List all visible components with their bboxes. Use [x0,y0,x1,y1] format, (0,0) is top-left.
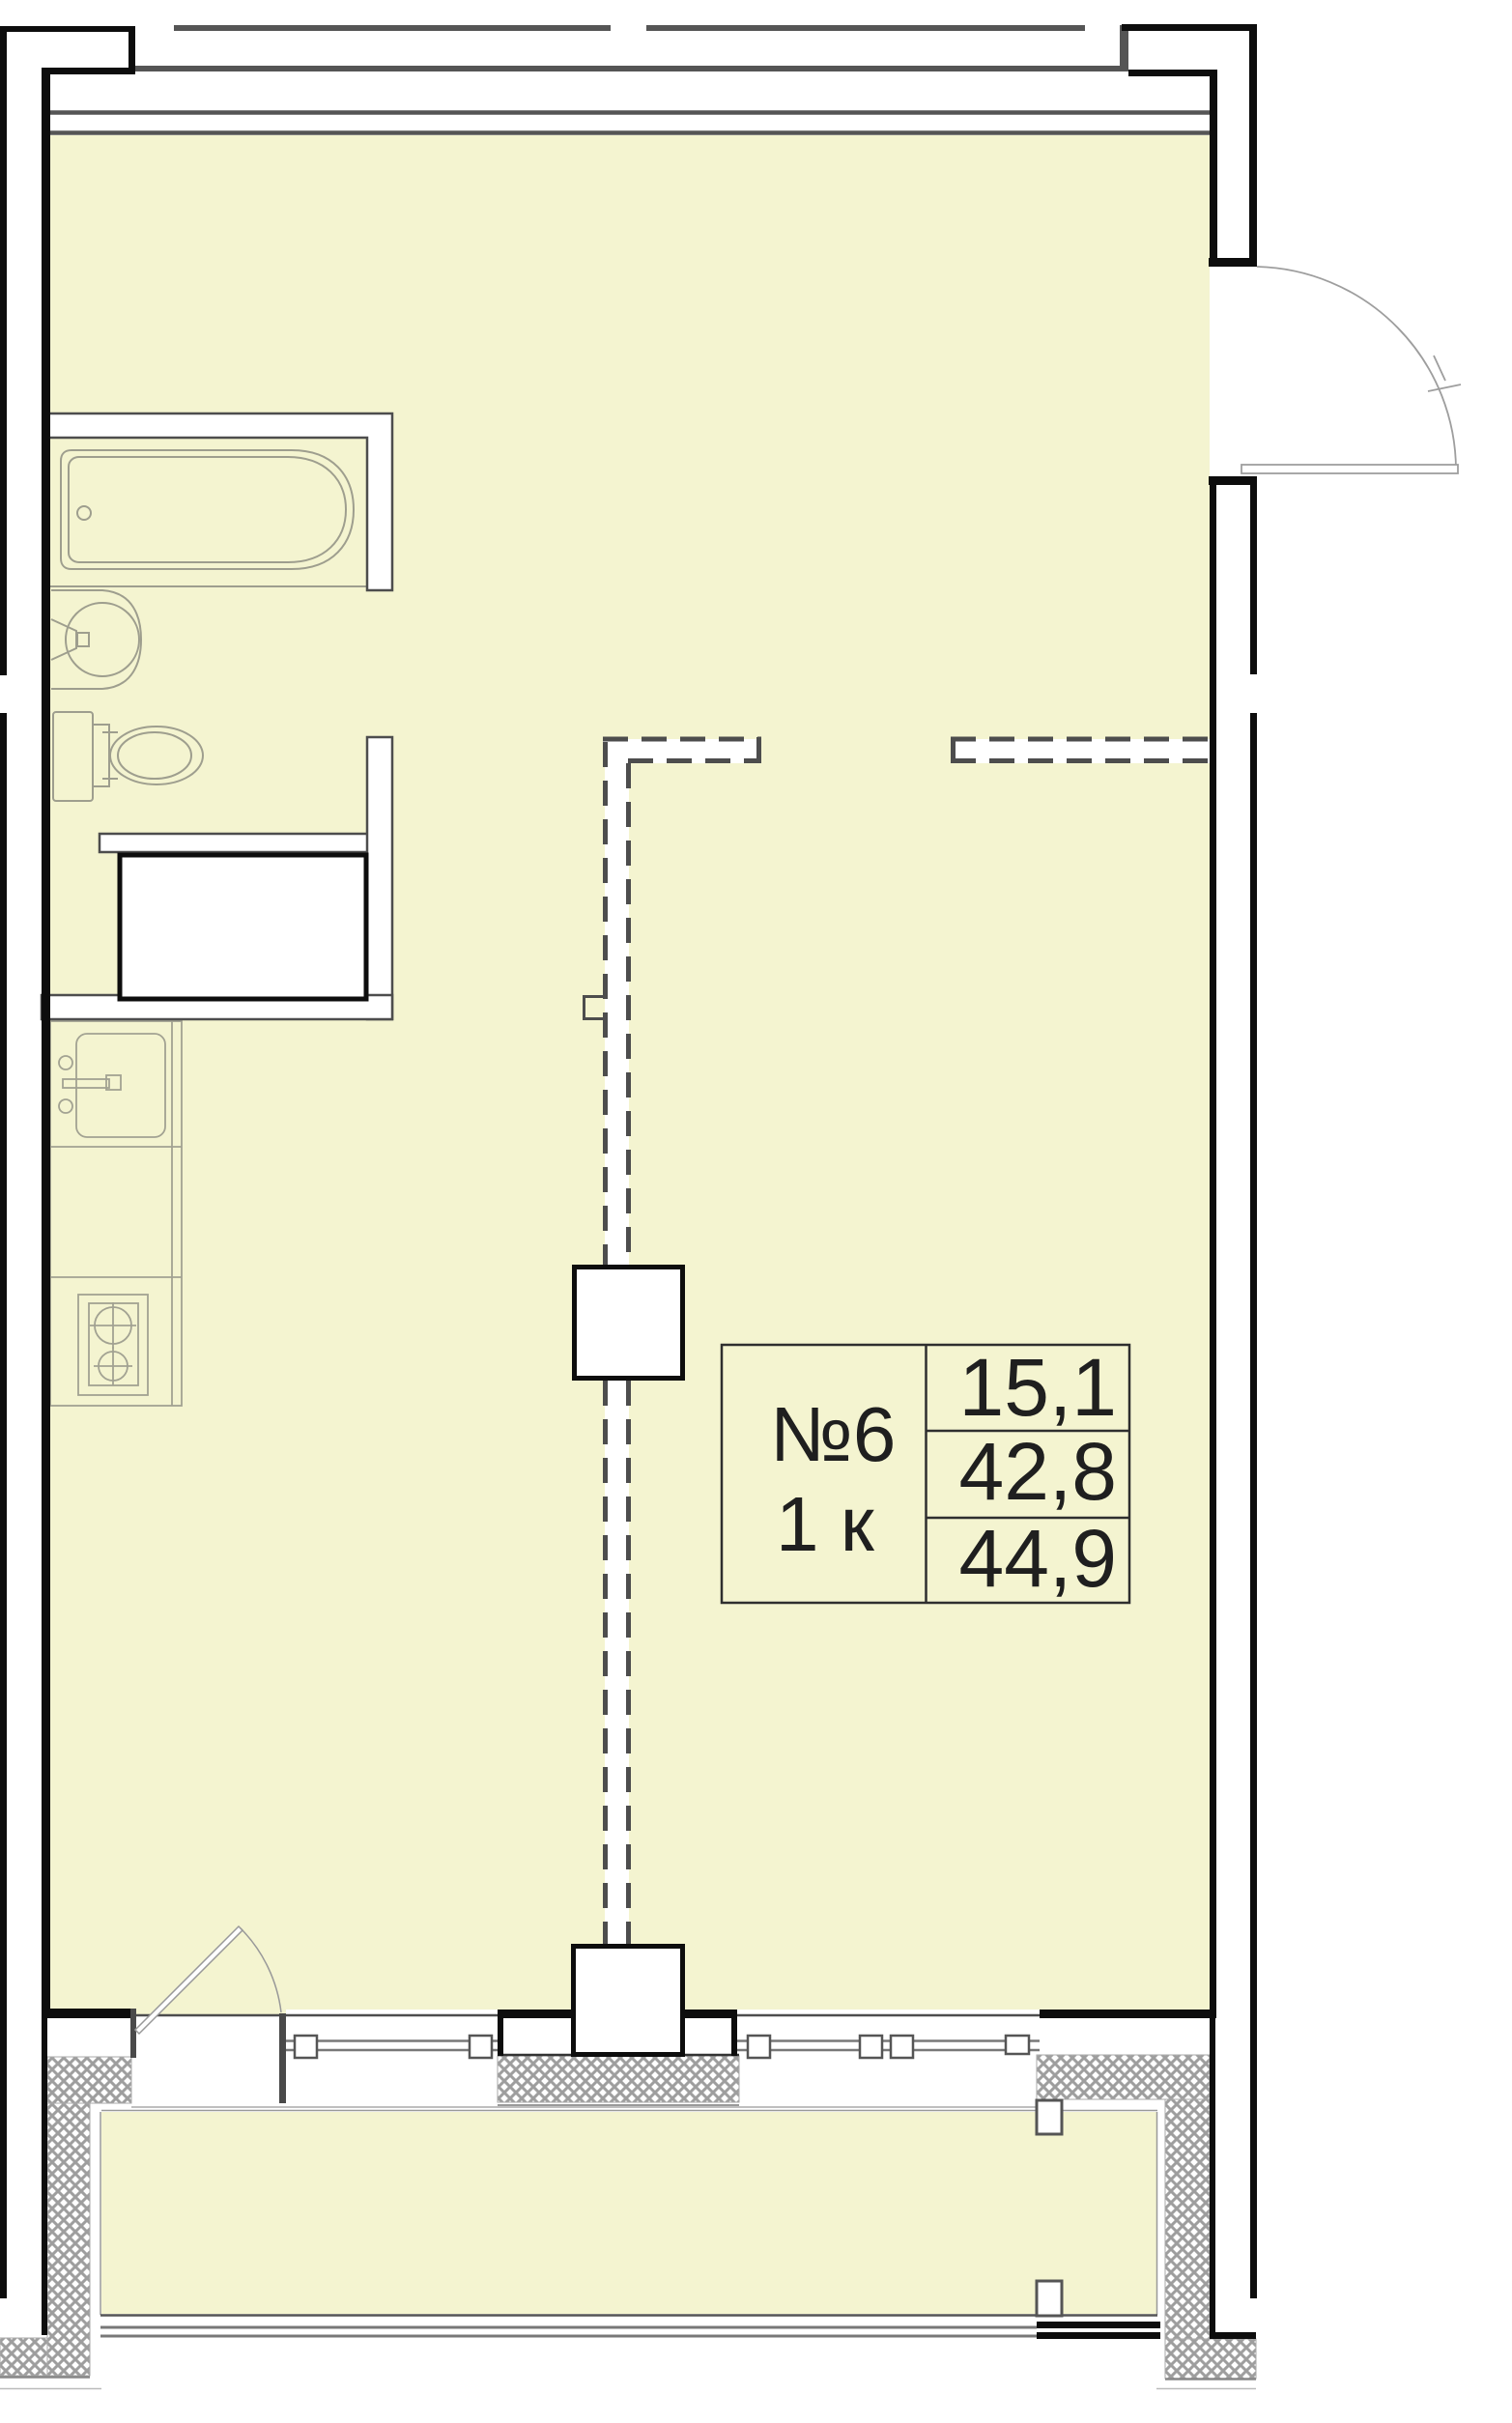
svg-text:42,8: 42,8 [959,1426,1118,1517]
svg-text:1 к: 1 к [776,1481,875,1567]
svg-text:№6: №6 [770,1391,896,1477]
svg-text:15,1: 15,1 [959,1342,1118,1433]
svg-text:44,9: 44,9 [959,1513,1118,1604]
